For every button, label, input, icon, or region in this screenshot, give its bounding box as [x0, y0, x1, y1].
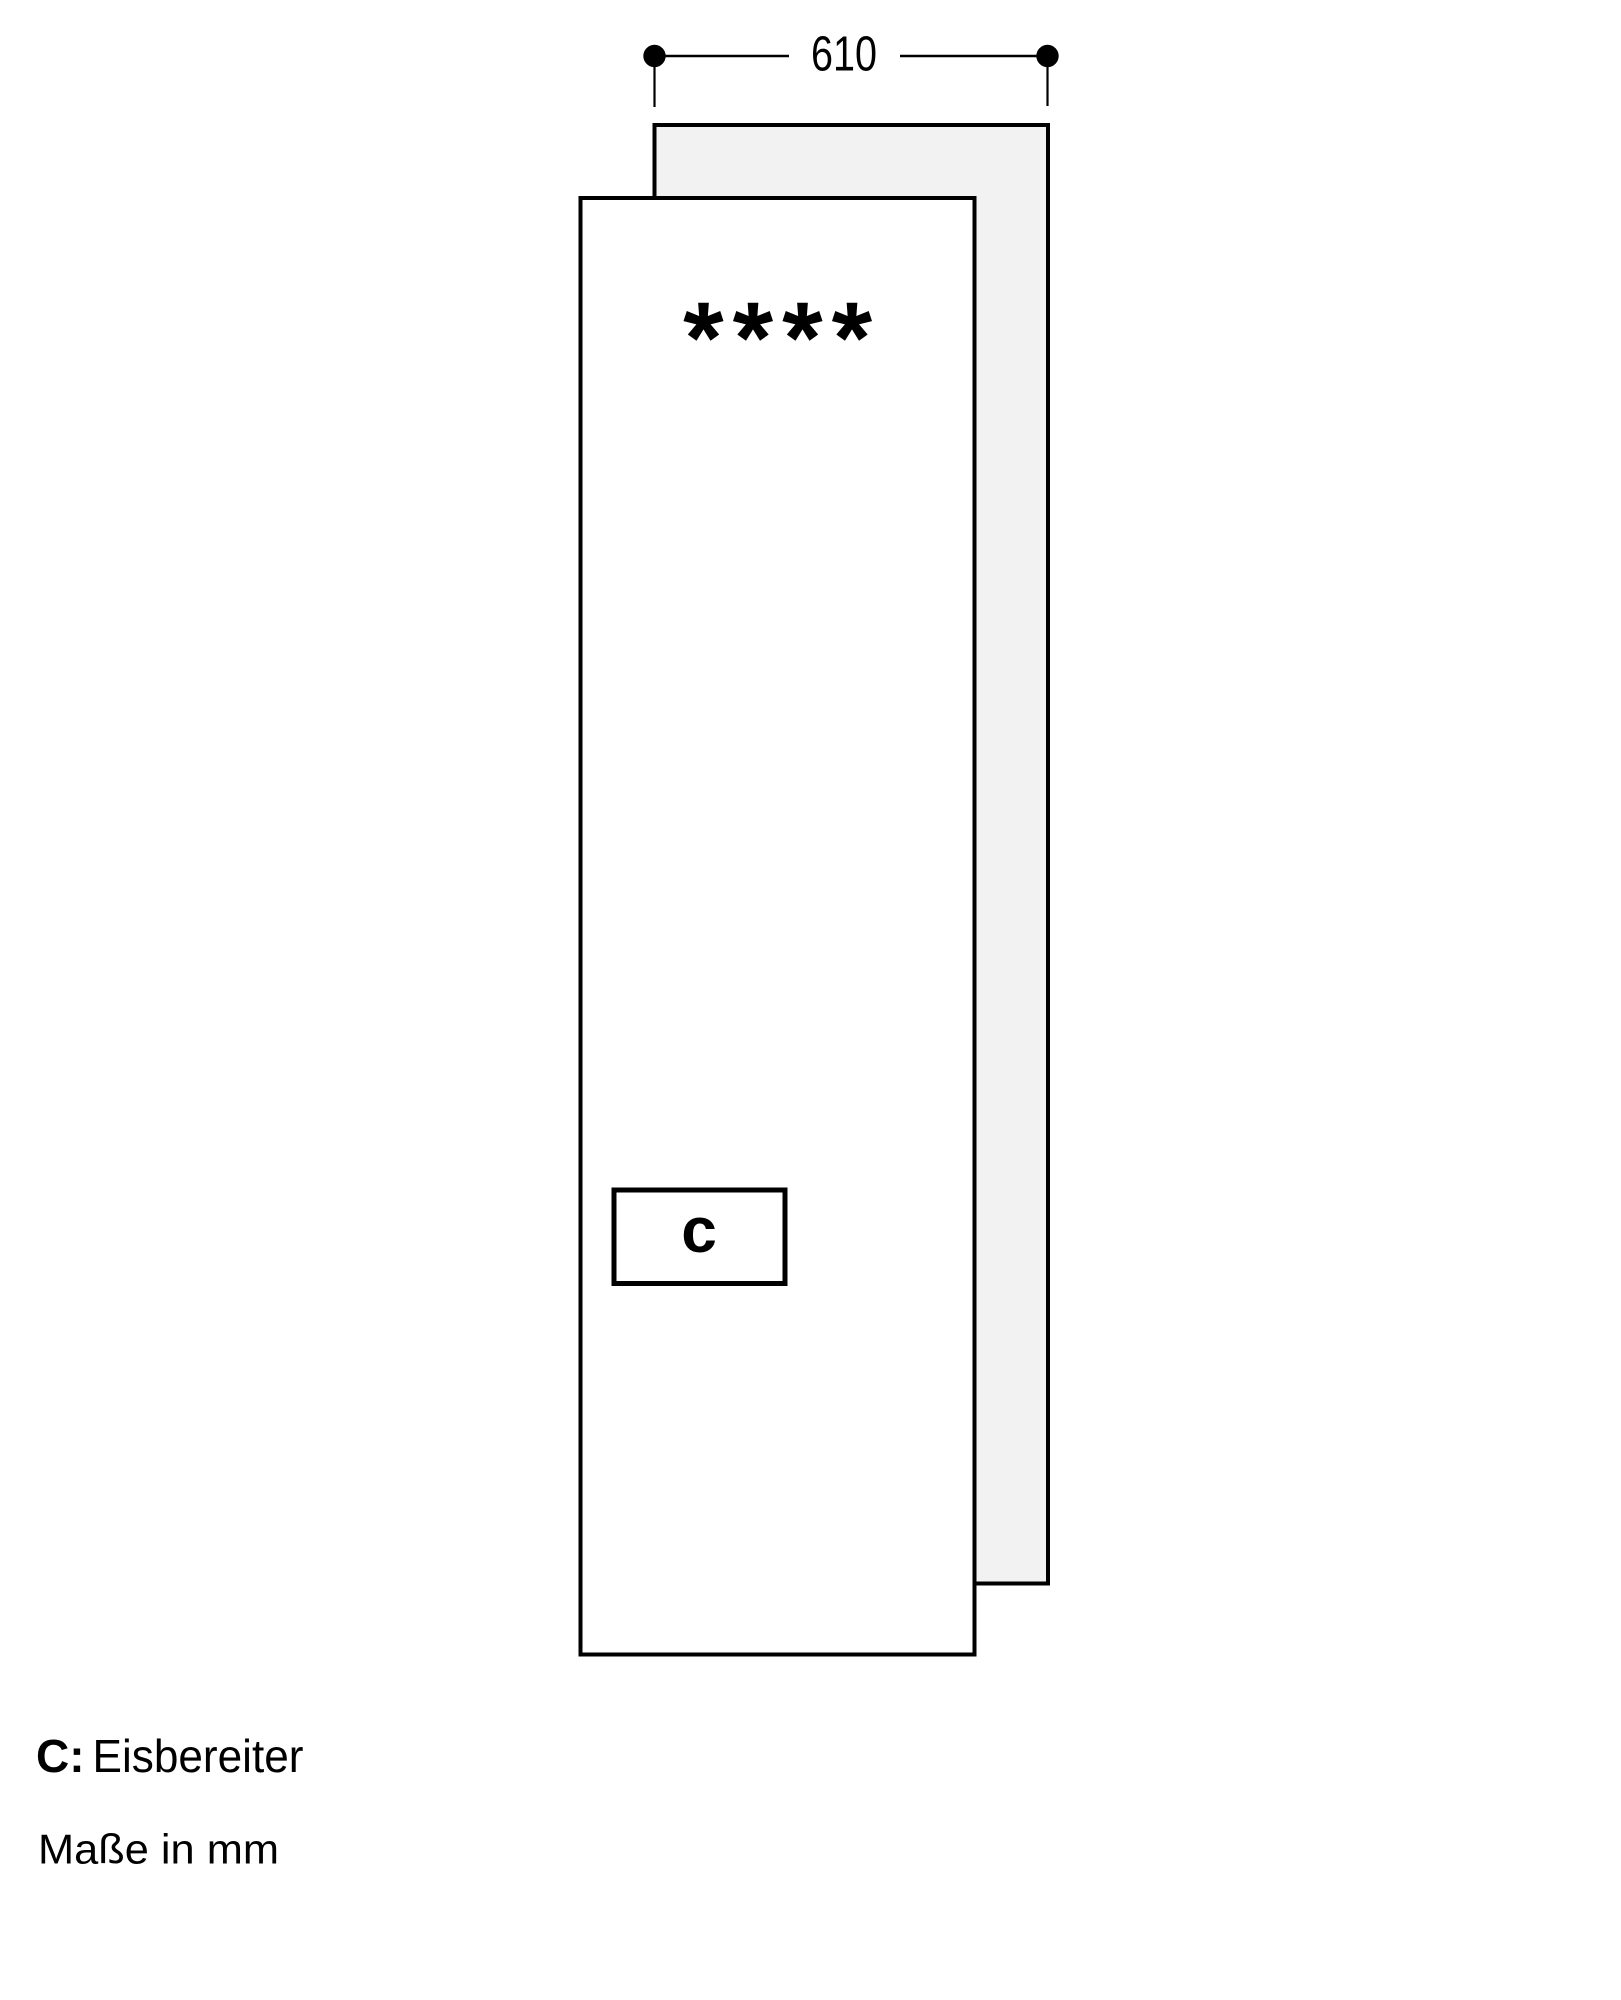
svg-text:c: c — [681, 1194, 717, 1266]
svg-text:C:: C: — [36, 1730, 85, 1782]
svg-text:610: 610 — [811, 28, 877, 82]
svg-text:Maße in mm: Maße in mm — [38, 1826, 279, 1873]
svg-text:Eisbereiter: Eisbereiter — [93, 1730, 304, 1782]
